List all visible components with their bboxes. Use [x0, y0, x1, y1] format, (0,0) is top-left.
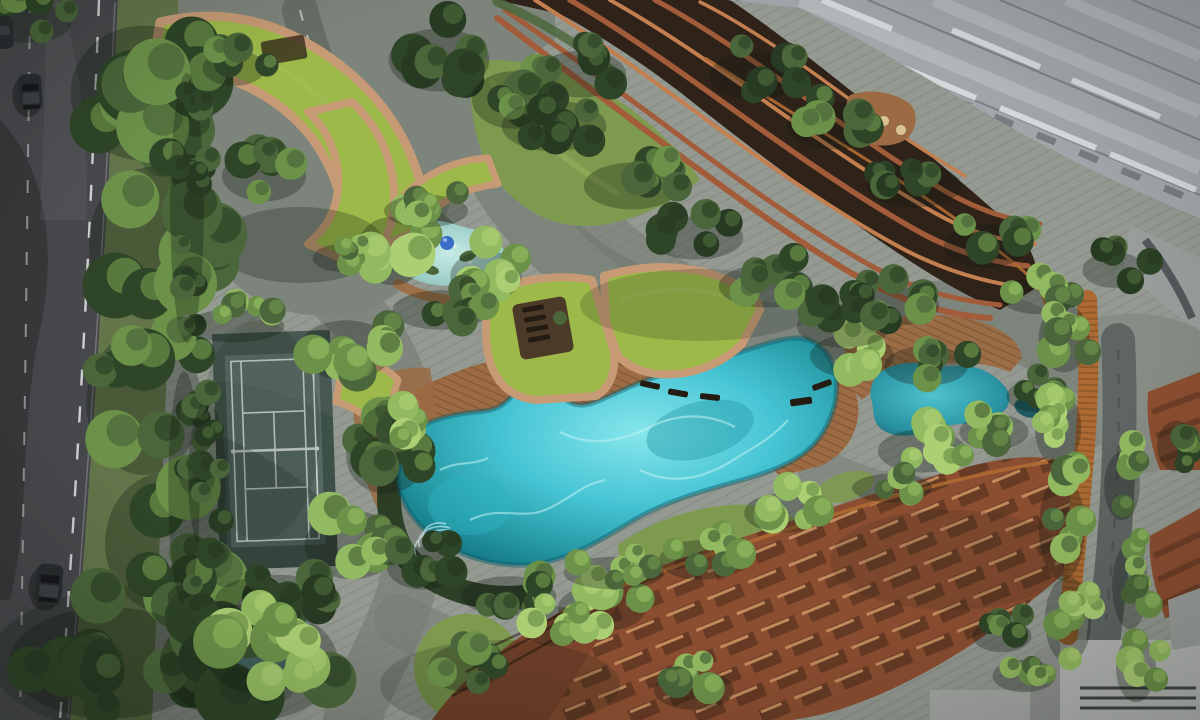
vignette	[0, 0, 1200, 720]
aerial-rendering	[0, 0, 1200, 720]
scene-canvas	[0, 0, 1200, 720]
